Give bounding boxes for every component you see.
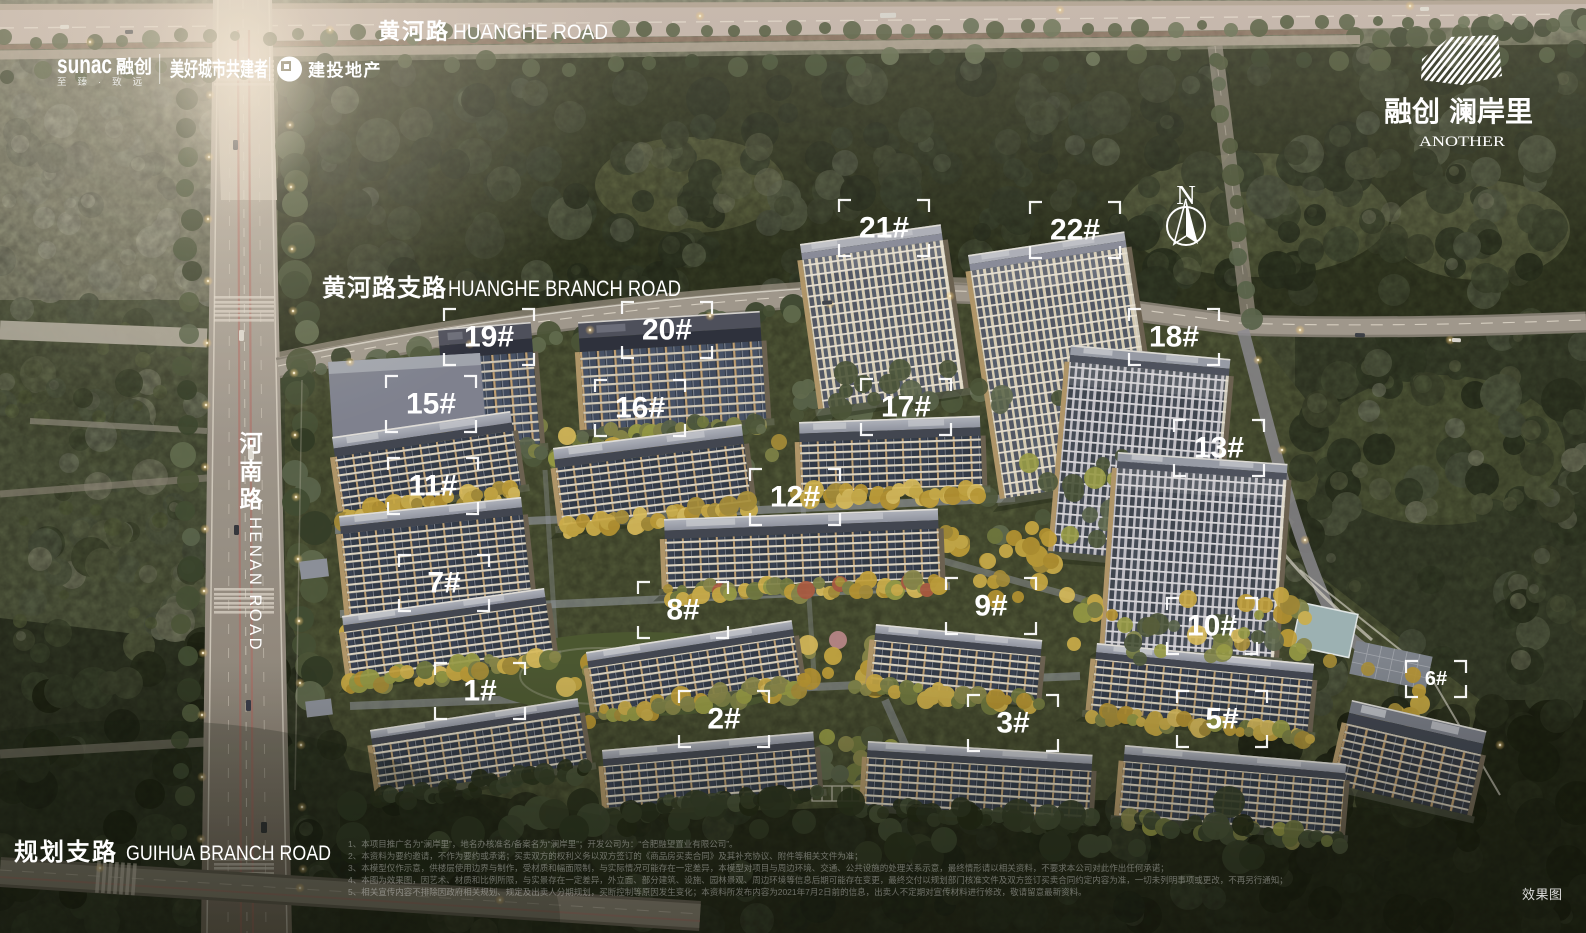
svg-text:HUANGHE BRANCH ROAD: HUANGHE BRANCH ROAD [448, 276, 681, 301]
svg-text:12#: 12# [770, 481, 820, 514]
svg-text:GUIHUA BRANCH ROAD: GUIHUA BRANCH ROAD [126, 842, 331, 865]
svg-text:规划支路: 规划支路 [14, 838, 118, 866]
svg-text:河: 河 [240, 430, 263, 456]
svg-text:HUANGHE ROAD: HUANGHE ROAD [453, 21, 608, 44]
svg-text:19#: 19# [464, 321, 514, 354]
svg-text:15#: 15# [406, 388, 456, 421]
svg-text:至臻·致远: 至臻·致远 [57, 76, 153, 88]
svg-text:3、本模型仅作示意，供楼层使用边界与制作，受材质和幅面限制，: 3、本模型仅作示意，供楼层使用边界与制作，受材质和幅面限制，与实际情况可能存在一… [348, 863, 1169, 873]
svg-text:22#: 22# [1050, 214, 1100, 247]
svg-text:HENAN ROAD: HENAN ROAD [246, 517, 264, 652]
svg-text:13#: 13# [1194, 432, 1244, 465]
svg-text:3#: 3# [996, 707, 1030, 740]
svg-text:6#: 6# [1425, 668, 1447, 690]
svg-text:1#: 1# [463, 675, 497, 708]
svg-text:20#: 20# [642, 314, 692, 347]
svg-text:ANOTHER: ANOTHER [1419, 134, 1505, 150]
svg-text:21#: 21# [859, 212, 909, 245]
svg-text:11#: 11# [409, 470, 458, 503]
svg-text:黄河路: 黄河路 [378, 19, 450, 44]
svg-text:sunac: sunac [57, 49, 112, 79]
svg-text:16#: 16# [615, 392, 665, 425]
svg-text:2#: 2# [707, 703, 741, 736]
svg-text:效果图: 效果图 [1522, 887, 1563, 902]
svg-text:18#: 18# [1149, 321, 1199, 354]
svg-text:8#: 8# [666, 594, 700, 627]
svg-text:建投地产: 建投地产 [308, 60, 382, 80]
svg-text:4、本图为效果图，因艺术、材质和比例所限，与实景存在一定差异: 4、本图为效果图，因艺术、材质和比例所限，与实景存在一定差异，外立面、部分建筑、… [348, 875, 1288, 885]
svg-text:5、相关宣传内容不排除因政府相关规划、规定及出卖人分期规划，: 5、相关宣传内容不排除因政府相关规划、规定及出卖人分期规划，买断控制等原因发生变… [348, 887, 1087, 897]
svg-text:南: 南 [240, 458, 263, 484]
svg-text:7#: 7# [427, 567, 461, 600]
svg-text:1、本项目推广名为“澜岸里”，地名办核准名/备案名为“澜岸里: 1、本项目推广名为“澜岸里”，地名办核准名/备案名为“澜岸里”；开发公司为：“合… [348, 839, 738, 849]
svg-text:2、本资料为要约邀请，不作为要约或承诺；买卖双方的权利义务以: 2、本资料为要约邀请，不作为要约或承诺；买卖双方的权利义务以双方签订的《商品房买… [348, 851, 863, 861]
svg-text:美好城市共建者: 美好城市共建者 [170, 57, 268, 81]
svg-text:融创: 融创 [116, 56, 152, 77]
svg-text:9#: 9# [974, 590, 1008, 623]
svg-text:5#: 5# [1205, 703, 1239, 736]
svg-text:10#: 10# [1187, 610, 1237, 643]
svg-text:融创澜岸里: 融创澜岸里 [1384, 96, 1533, 127]
svg-text:路: 路 [240, 486, 264, 512]
svg-text:黄河路支路: 黄河路支路 [322, 274, 447, 302]
svg-text:17#: 17# [881, 391, 931, 424]
